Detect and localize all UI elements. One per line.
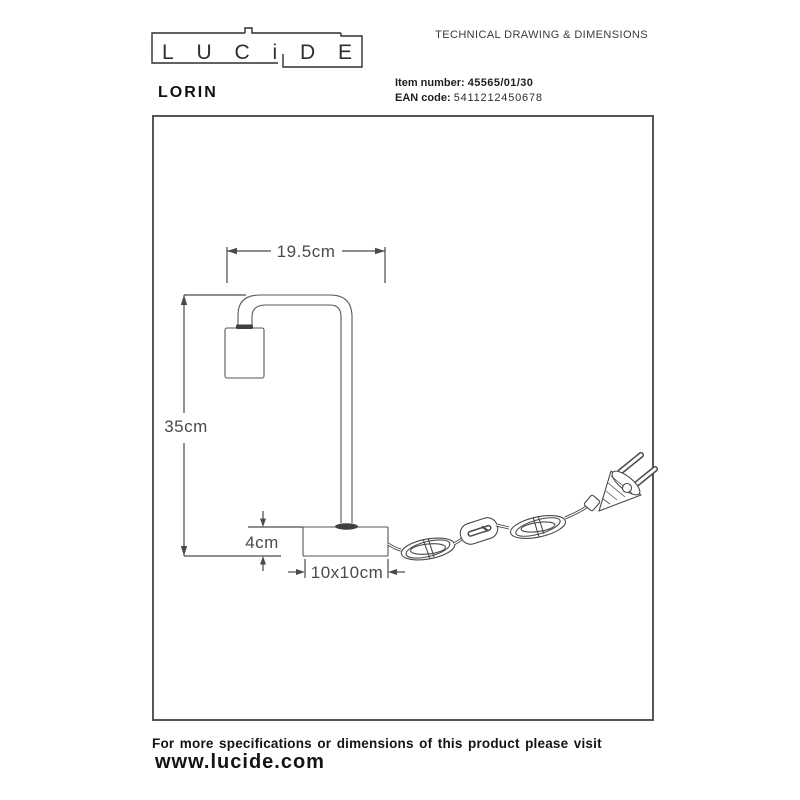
item-number-value: 45565/01/30 bbox=[468, 77, 534, 89]
doc-title: TECHNICAL DRAWING & DIMENSIONS bbox=[435, 29, 648, 41]
technical-drawing-frame bbox=[152, 115, 654, 721]
lucide-logo-frame bbox=[152, 28, 362, 67]
ean-code-row: EAN code: 5411212450678 bbox=[395, 91, 543, 106]
product-name: LORIN bbox=[158, 84, 218, 102]
item-number-label: Item number: bbox=[395, 77, 465, 89]
ean-code-value: 5411212450678 bbox=[454, 92, 543, 104]
lucide-logo: LUCiDE bbox=[148, 26, 368, 74]
footer-website: www.lucide.com bbox=[155, 751, 325, 774]
item-info-block: Item number: 45565/01/30 EAN code: 54112… bbox=[395, 76, 543, 106]
lucide-logo-letters: LUCiDE bbox=[162, 41, 352, 64]
item-number-row: Item number: 45565/01/30 bbox=[395, 76, 543, 91]
ean-code-label: EAN code: bbox=[395, 92, 451, 104]
footer-note: For more specifications or dimensions of… bbox=[152, 736, 602, 751]
